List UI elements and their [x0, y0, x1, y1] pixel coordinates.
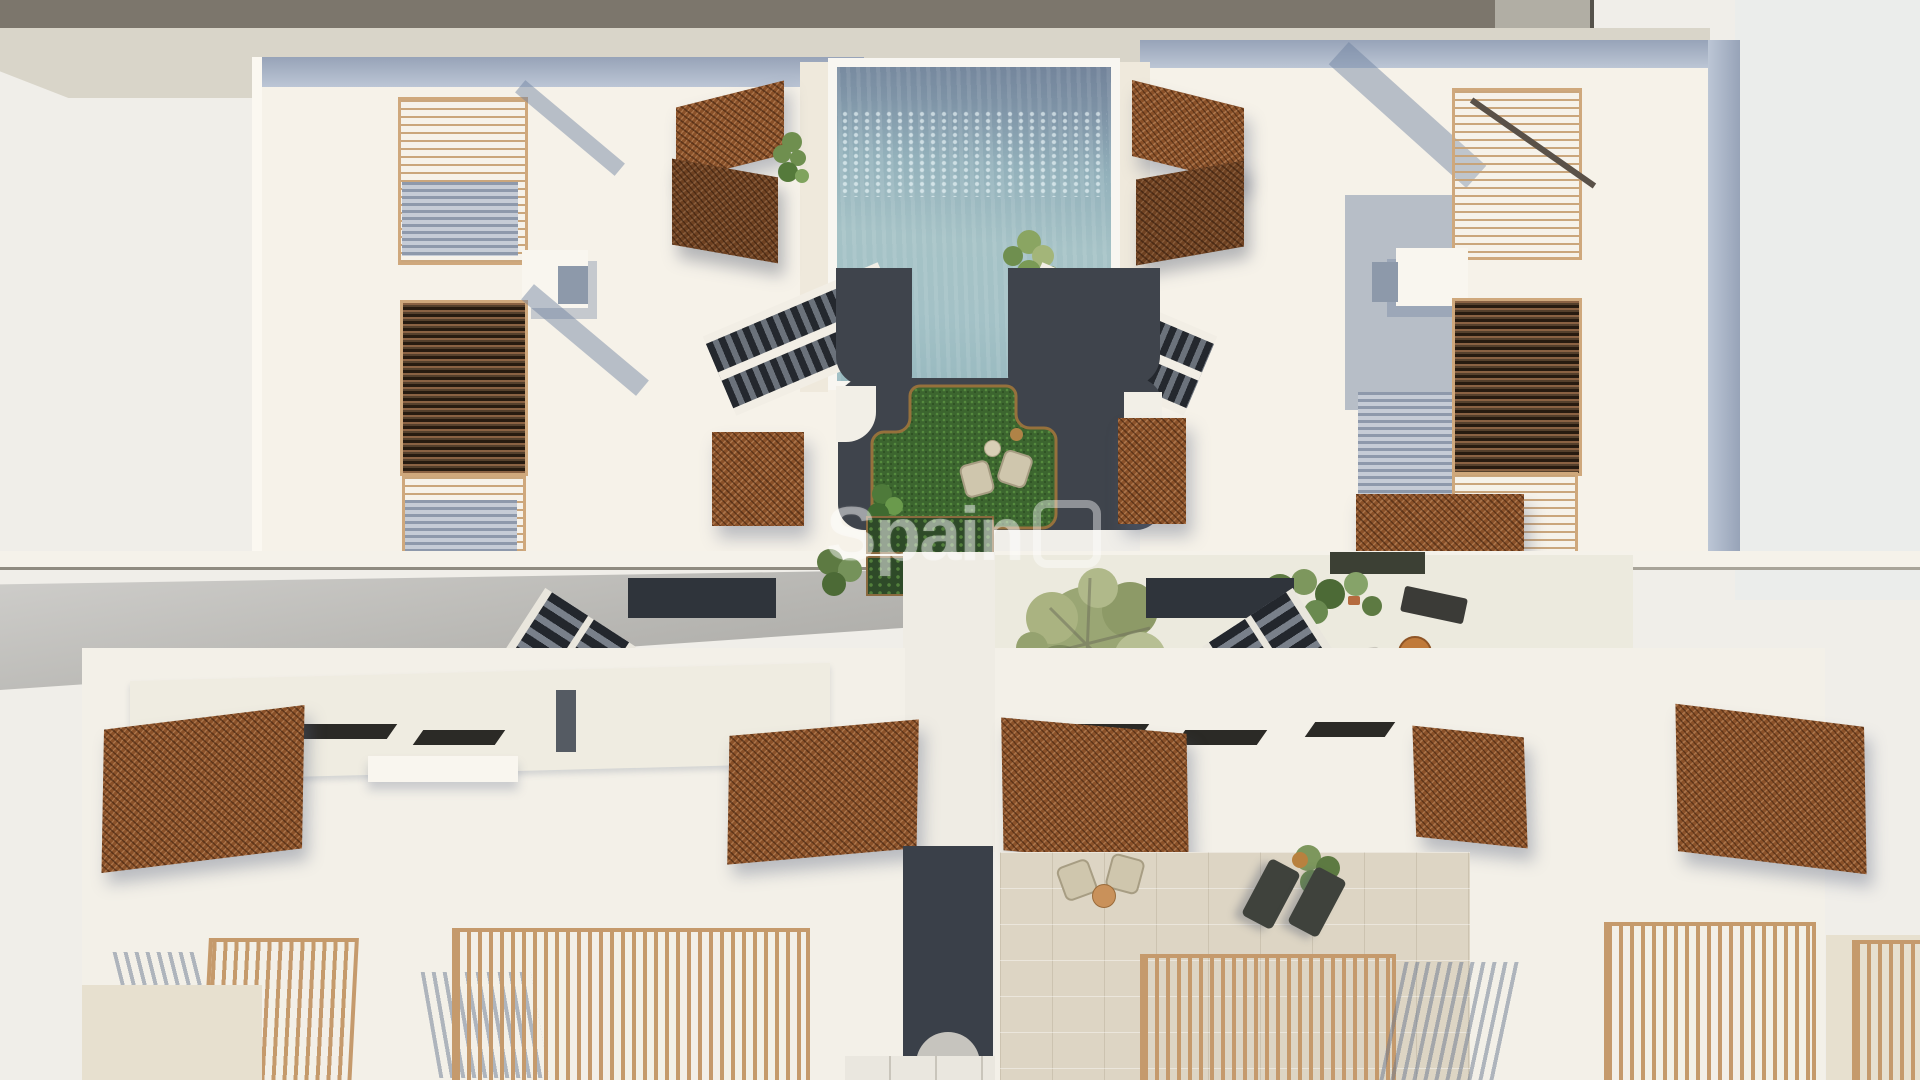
skylight-slot-left-2	[413, 730, 506, 745]
courtyard-louver-left	[712, 432, 804, 526]
pool-water-ripples	[841, 111, 1107, 197]
patio-table	[1092, 884, 1116, 908]
balcony-right-gray-box	[1372, 262, 1398, 302]
render-canvas: Spain	[0, 0, 1920, 1080]
central-walkway	[903, 846, 993, 1080]
terrace-railing-b	[452, 928, 810, 1080]
skylight-slot-left-1	[291, 724, 398, 739]
skylight-slot-right-2	[1175, 730, 1268, 745]
pergola-right-upper	[1452, 88, 1582, 260]
courtyard-side-table	[984, 440, 1001, 457]
corten-canopy-far-left	[102, 705, 305, 873]
terrace-floor-lower-left	[82, 985, 262, 1080]
top-street-strip	[0, 0, 1588, 30]
pergola-left-middle-dark	[400, 300, 528, 476]
courtyard-canopy-right	[1356, 494, 1524, 558]
watermark-text: Spain	[826, 491, 1023, 578]
pergola-left-upper-shadow-slats	[402, 182, 518, 256]
terrace-railing-e	[1852, 940, 1920, 1080]
watermark-logo-icon	[1033, 500, 1101, 568]
pergola-left-lower-shadow-slats	[405, 500, 517, 556]
pool-edge-plant	[762, 128, 814, 190]
terrace-railing-c	[1140, 954, 1396, 1080]
mid-edge-line-left	[0, 567, 905, 570]
stair-window-left	[556, 690, 576, 752]
lounger-side-table	[1292, 852, 1308, 868]
skylight-slot-right-3	[1305, 722, 1396, 737]
building-top-left-edge-highlight	[252, 57, 262, 557]
pergola-right-middle-dark	[1452, 298, 1582, 476]
courtyard-wood-stool	[1010, 428, 1023, 441]
corten-canopy-center-left	[727, 719, 919, 864]
building-top-right-parapet-top	[1140, 40, 1740, 68]
stairwell-notch-left	[628, 578, 776, 618]
corten-canopy-right-inner	[1412, 726, 1527, 849]
parapet-slab-left	[368, 756, 518, 782]
watermark: Spain	[826, 488, 1166, 580]
right-margin-ground	[1735, 0, 1920, 600]
terrace-railing-d	[1604, 922, 1816, 1080]
balcony-left-gray-box	[558, 266, 588, 304]
corten-canopy-center-right	[1001, 718, 1189, 867]
corten-canopy-far-right	[1675, 704, 1866, 875]
building-top-right-parapet-right	[1708, 40, 1740, 560]
